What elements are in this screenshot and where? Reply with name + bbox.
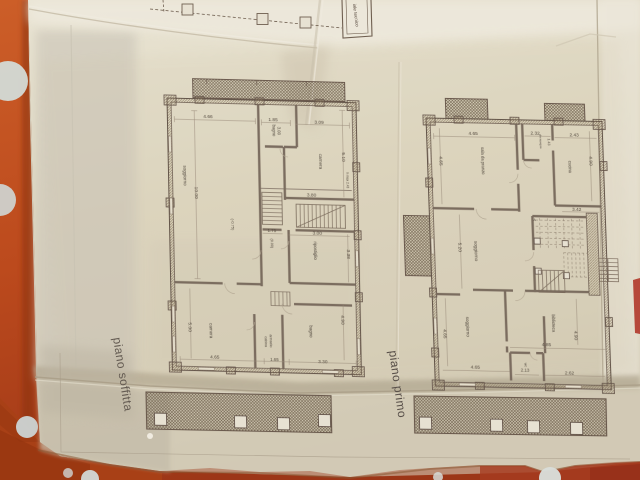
svg-text:disimpegno: disimpegno <box>538 134 543 149</box>
svg-text:5.20: 5.20 <box>456 243 462 253</box>
svg-text:2.62: 2.62 <box>565 371 575 377</box>
svg-text:4.65: 4.65 <box>441 329 447 339</box>
svg-text:5.10: 5.10 <box>340 152 346 162</box>
svg-text:4.90: 4.90 <box>339 315 345 325</box>
svg-text:cucina: cucina <box>567 161 572 174</box>
svg-text:(-0.75): (-0.75) <box>230 219 235 232</box>
svg-text:10.00: 10.00 <box>193 187 199 199</box>
svg-text:4.90: 4.90 <box>572 331 578 341</box>
svg-text:1.65: 1.65 <box>270 357 279 362</box>
svg-text:3.00: 3.00 <box>313 231 323 237</box>
svg-text:1.43: 1.43 <box>547 138 551 145</box>
svg-text:2.43: 2.43 <box>569 132 579 138</box>
svg-text:soggiorno: soggiorno <box>473 241 479 262</box>
svg-text:1.85: 1.85 <box>268 117 278 123</box>
svg-text:biblioteca: biblioteca <box>551 314 557 332</box>
svg-text:4.90: 4.90 <box>587 156 593 166</box>
svg-text:4.66: 4.66 <box>203 114 213 120</box>
svg-text:bagno: bagno <box>308 325 313 338</box>
svg-text:4.85: 4.85 <box>542 342 552 348</box>
svg-text:camera: camera <box>318 154 323 170</box>
svg-text:4.65: 4.65 <box>468 131 478 137</box>
svg-text:4.65: 4.65 <box>437 156 443 166</box>
svg-text:soggiorno: soggiorno <box>182 165 187 186</box>
svg-text:camera: camera <box>208 323 213 339</box>
svg-text:ripostiglio: ripostiglio <box>313 242 318 261</box>
svg-text:soggiorno: soggiorno <box>465 317 471 338</box>
svg-text:cabina: cabina <box>264 336 268 347</box>
svg-text:4.65: 4.65 <box>471 365 481 371</box>
svg-text:3.80: 3.80 <box>307 192 317 198</box>
svg-text:sala da pranzo: sala da pranzo <box>480 147 486 175</box>
svg-text:3.42: 3.42 <box>572 207 582 213</box>
svg-text:3.30: 3.30 <box>318 359 328 365</box>
svg-text:3.38: 3.38 <box>345 249 351 259</box>
svg-text:4.65: 4.65 <box>210 354 220 360</box>
svg-text:bagno: bagno <box>271 125 276 137</box>
svg-text:h max 2.43: h max 2.43 <box>345 172 349 188</box>
svg-text:3.09: 3.09 <box>314 120 324 126</box>
svg-text:(0.00): (0.00) <box>270 239 274 248</box>
svg-text:1.75: 1.75 <box>268 228 277 233</box>
svg-text:wc: wc <box>524 363 528 368</box>
svg-text:2.13: 2.13 <box>521 368 530 373</box>
svg-text:3.00: 3.00 <box>277 127 282 136</box>
svg-text:5.00: 5.00 <box>186 322 192 332</box>
svg-text:armadio: armadio <box>269 334 273 347</box>
